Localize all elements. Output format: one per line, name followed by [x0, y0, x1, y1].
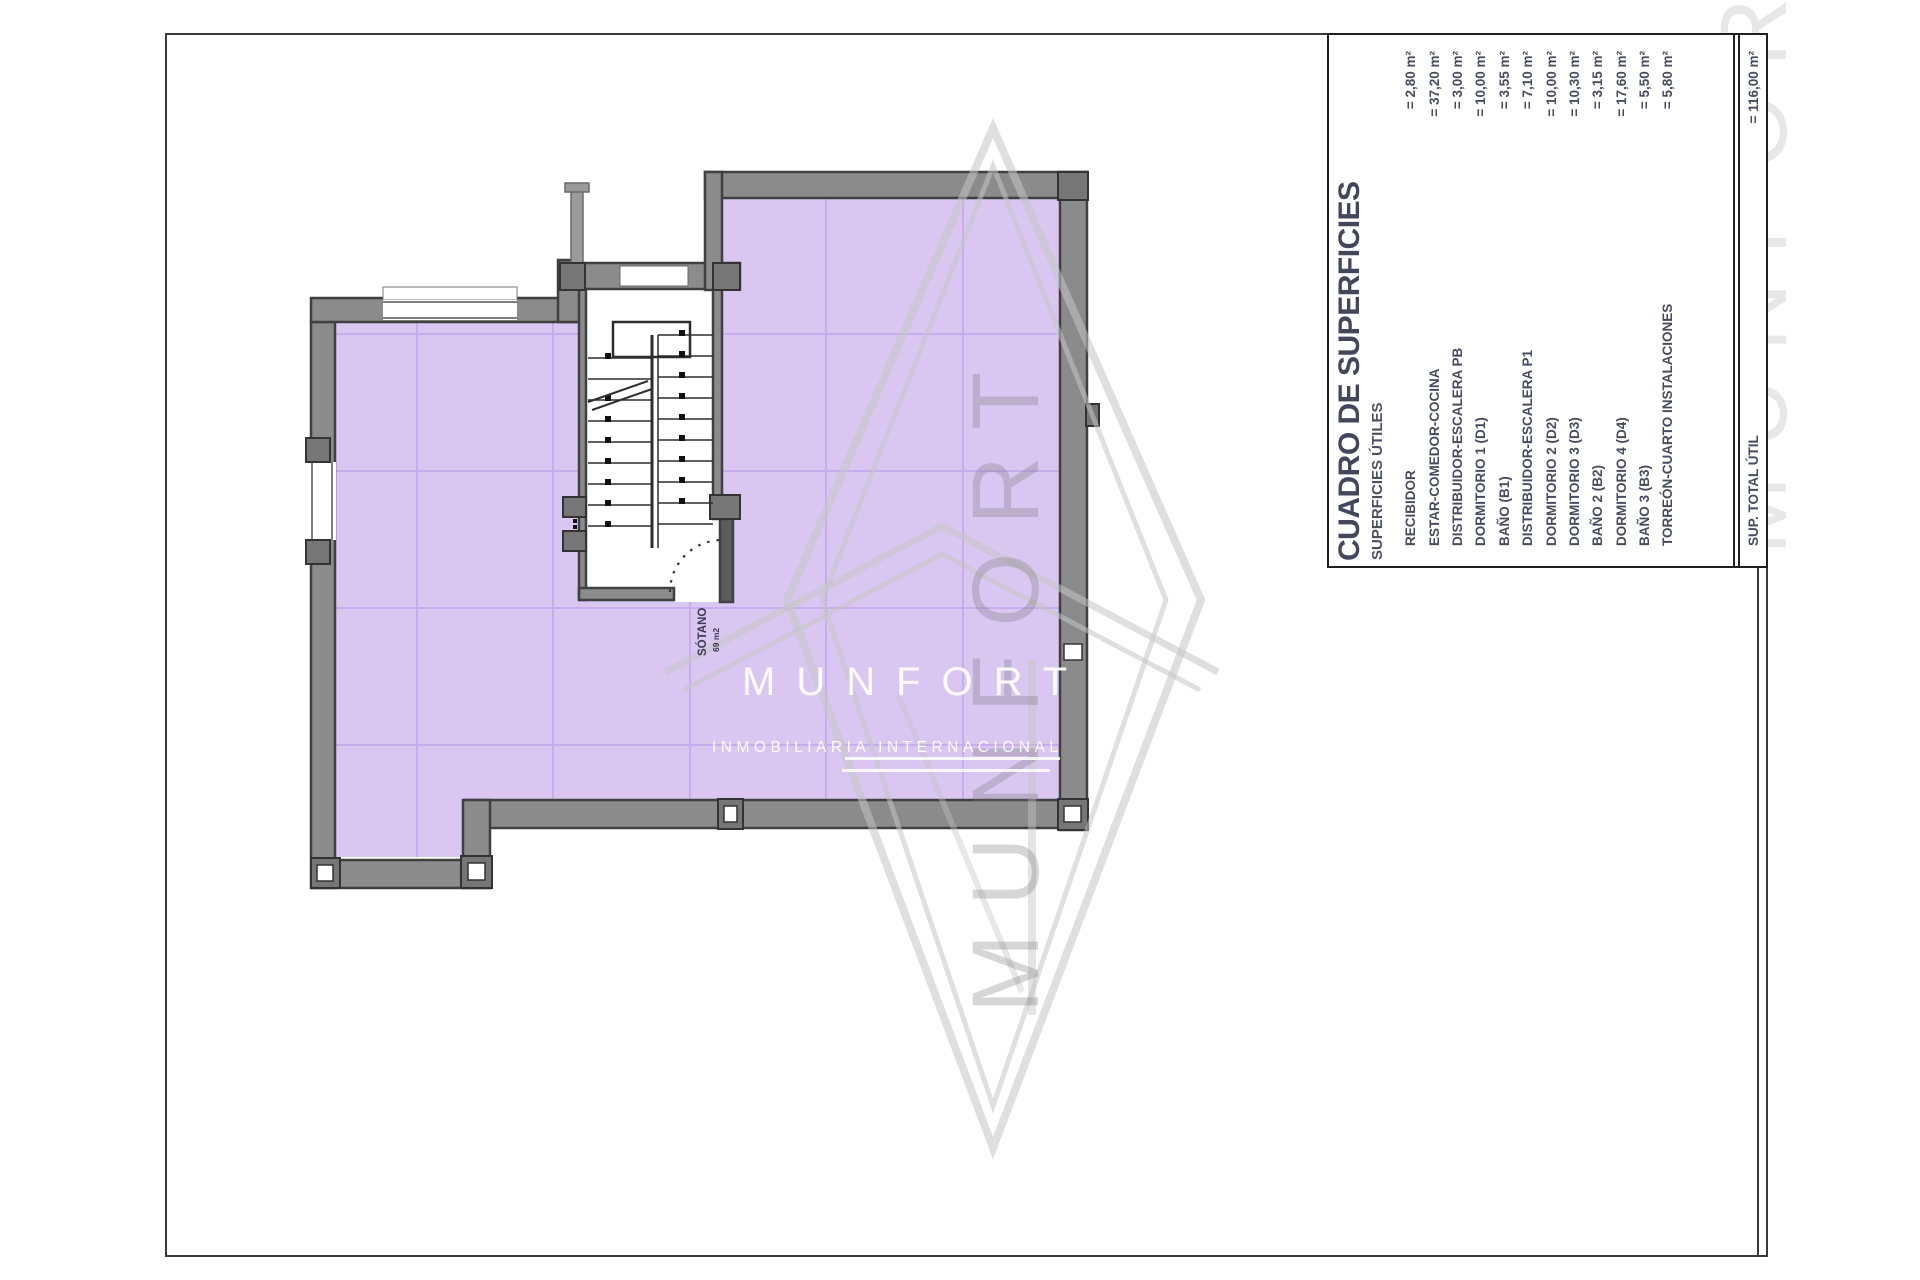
table-row: DORMITORIO 4 (D4)= 17,60 m² [1610, 35, 1633, 566]
plan-sheet-page: SÓTANO 69 m2 MUNFORT MUNFORT MUNFORT INM… [0, 0, 1920, 1280]
row-value: = 3,55 m² [1497, 35, 1512, 109]
table-row: BAÑO 3 (B3)= 5,50 m² [1633, 35, 1656, 566]
window-stair-top [620, 266, 688, 286]
giant-watermark-text: MUNFORT [952, 268, 1062, 1013]
table-row: DISTRIBUIDOR-ESCALERA PB= 3,00 m² [1446, 35, 1469, 566]
row-label: DISTRIBUIDOR-ESCALERA PB [1450, 348, 1465, 566]
row-value: = 3,15 m² [1590, 35, 1605, 109]
watermark-brand: MUNFORT [742, 660, 1088, 705]
row-value: = 17,60 m² [1614, 35, 1629, 117]
table-row: BAÑO 2 (B2)= 3,15 m² [1586, 35, 1609, 566]
wall-right [1060, 172, 1087, 830]
table-row: RECIBIDOR= 2,80 m² [1399, 35, 1422, 566]
row-label: BAÑO 2 (B2) [1590, 465, 1605, 566]
watermark-tagline: INMOBILIARIA INTERNACIONAL [712, 739, 1062, 757]
table-row: DORMITORIO 3 (D3)= 10,30 m² [1563, 35, 1586, 566]
surface-table-total: SUP. TOTAL ÚTIL = 116,00 m² [1738, 35, 1768, 566]
row-value: = 3,00 m² [1450, 35, 1465, 109]
row-value: = 7,10 m² [1520, 35, 1535, 109]
table-row: BAÑO (B1)= 3,55 m² [1493, 35, 1516, 566]
row-label: DORMITORIO 4 (D4) [1614, 417, 1629, 566]
table-row: ESTAR-COMEDOR-COCINA= 37,20 m² [1422, 35, 1445, 566]
row-value: = 2,80 m² [1403, 35, 1418, 109]
row-label: ESTAR-COMEDOR-COCINA [1427, 369, 1442, 567]
row-value: = 37,20 m² [1427, 35, 1442, 117]
row-label: TORREÓN-CUARTO INSTALACIONES [1660, 304, 1675, 566]
table-row: TORREÓN-CUARTO INSTALACIONES= 5,80 m² [1656, 35, 1679, 566]
window-sill-top [383, 287, 517, 300]
total-label: SUP. TOTAL ÚTIL [1746, 435, 1761, 566]
table-subtitle: SUPERFICIES ÚTILES [1369, 402, 1386, 560]
row-value: = 5,80 m² [1660, 35, 1675, 109]
table-row: DORMITORIO 2 (D2)= 10,00 m² [1539, 35, 1562, 566]
wall-spur [571, 190, 583, 268]
table-row: DISTRIBUIDOR-ESCALERA P1= 7,10 m² [1516, 35, 1539, 566]
door-jamb [720, 519, 733, 602]
row-label: DORMITORIO 1 (D1) [1473, 417, 1488, 566]
window-top [383, 300, 517, 320]
wall-spur-cap [565, 183, 589, 192]
room-area-label: 69 m2 [711, 628, 721, 652]
surface-table: CUADRO DE SUPERFICIES SUPERFICIES ÚTILES… [1327, 33, 1768, 568]
wall-left [311, 322, 335, 888]
wall-top [705, 172, 1087, 198]
table-title: CUADRO DE SUPERFICIES [1333, 181, 1367, 561]
row-label: BAÑO (B1) [1497, 476, 1512, 566]
row-label: BAÑO 3 (B3) [1637, 465, 1652, 566]
table-row: DORMITORIO 1 (D1)= 10,00 m² [1469, 35, 1492, 566]
room-label: SÓTANO [696, 608, 709, 656]
row-label: DORMITORIO 2 (D2) [1544, 417, 1559, 566]
table-rows: RECIBIDOR= 2,80 m²ESTAR-COMEDOR-COCINA= … [1399, 35, 1680, 566]
wall-vestibule-bottom [579, 588, 674, 600]
row-value: = 5,50 m² [1637, 35, 1652, 109]
row-value: = 10,30 m² [1567, 35, 1582, 117]
row-value: = 10,00 m² [1544, 35, 1559, 117]
wall-stair-left [579, 289, 586, 600]
watermark-rule-bottom [842, 769, 1050, 772]
giant-watermark-column: MUNFORT [952, 268, 1062, 1013]
row-label: RECIBIDOR [1403, 470, 1418, 566]
surface-table-main: CUADRO DE SUPERFICIES SUPERFICIES ÚTILES… [1329, 35, 1735, 566]
watermark-rule-top [845, 757, 1060, 760]
row-label: DISTRIBUIDOR-ESCALERA P1 [1520, 350, 1535, 566]
wall-stair-right [713, 289, 722, 519]
total-value: = 116,00 m² [1746, 35, 1761, 123]
table-total-row: SUP. TOTAL ÚTIL = 116,00 m² [1740, 35, 1766, 566]
row-label: DORMITORIO 3 (D3) [1567, 417, 1582, 566]
surface-table-wrapper: CUADRO DE SUPERFICIES SUPERFICIES ÚTILES… [1327, 33, 1768, 568]
row-value: = 10,00 m² [1473, 35, 1488, 117]
